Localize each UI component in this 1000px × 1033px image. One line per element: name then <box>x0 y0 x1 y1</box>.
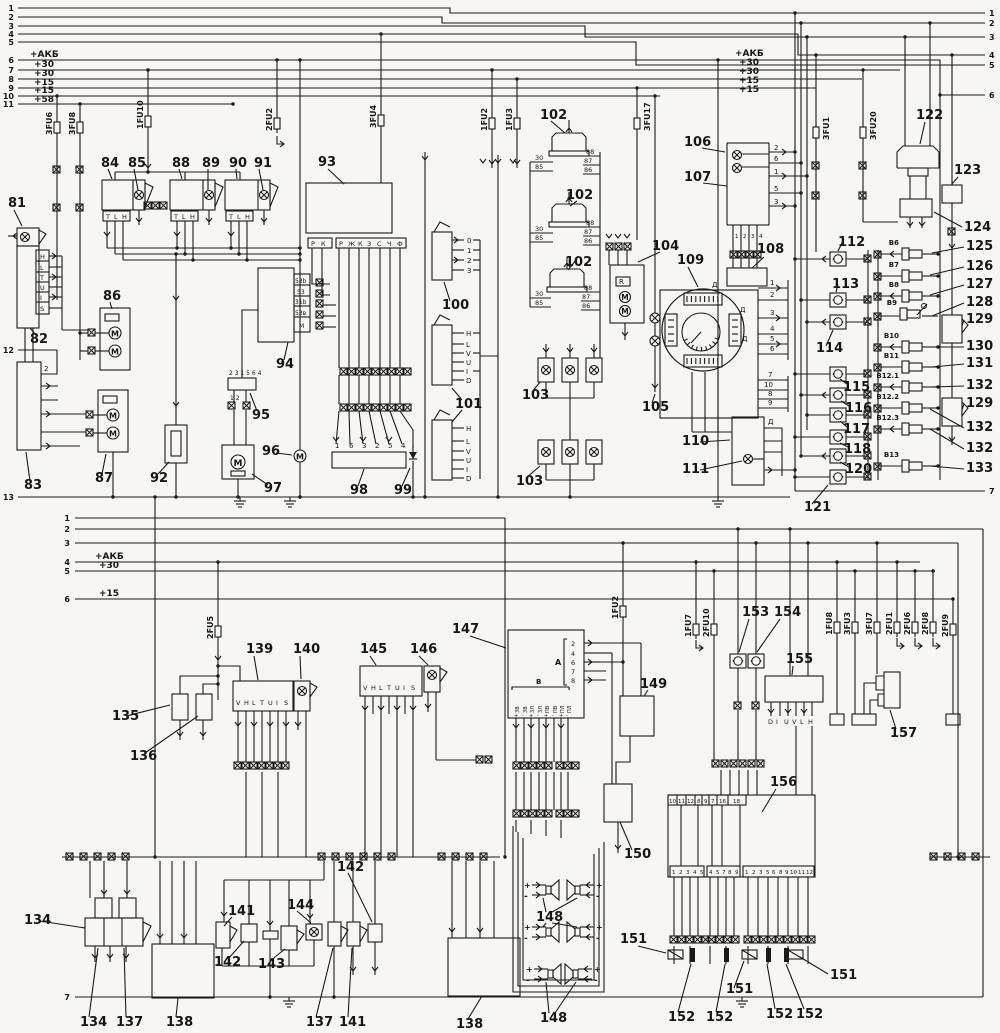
svg-text:Ж: Ж <box>348 240 355 248</box>
svg-text:152: 152 <box>668 1010 695 1025</box>
text-label: 4 <box>989 51 995 60</box>
svg-text:I: I <box>403 684 405 692</box>
component-label-126: 126 <box>966 259 993 274</box>
svg-text:86: 86 <box>582 302 590 310</box>
svg-text:L: L <box>800 718 804 726</box>
svg-text:5: 5 <box>770 335 774 343</box>
svg-text:85: 85 <box>535 163 543 171</box>
svg-text:157: 157 <box>890 726 917 741</box>
component-label-141: 141 <box>228 904 255 919</box>
component-label-138: 138 <box>456 1017 483 1032</box>
text-label: 12 <box>687 799 694 805</box>
svg-text:3: 3 <box>759 870 763 876</box>
svg-text:129: 129 <box>966 396 993 411</box>
text-label: ЗВ <box>523 706 529 713</box>
svg-text:T: T <box>259 699 264 707</box>
junction-dot <box>183 252 186 255</box>
text-label: 1 <box>989 9 995 18</box>
svg-text:2FU2: 2FU2 <box>265 108 274 131</box>
svg-text:53b: 53b <box>295 278 307 285</box>
text-label: H <box>245 213 250 221</box>
svg-text:Д: Д <box>742 335 748 343</box>
component-label-137: 137 <box>306 1015 333 1030</box>
text-label: 53в <box>295 310 307 317</box>
svg-text:D: D <box>466 475 471 483</box>
component-label-103: 103 <box>522 388 549 403</box>
svg-text:T: T <box>228 213 233 221</box>
component-label-136: 136 <box>130 749 157 764</box>
svg-text:3: 3 <box>774 198 778 206</box>
text-label: V <box>363 684 368 692</box>
component-label-132: 132 <box>966 441 993 456</box>
svg-text:53в: 53в <box>295 310 307 317</box>
svg-text:141: 141 <box>228 904 255 919</box>
svg-text:2: 2 <box>64 525 70 534</box>
junction-dot <box>936 294 939 297</box>
component-label-138: 138 <box>166 1015 193 1030</box>
text-label: B12.2 <box>876 393 899 401</box>
svg-text:88: 88 <box>584 284 592 292</box>
svg-text:96: 96 <box>262 444 280 459</box>
component-label-87: 87 <box>95 471 113 486</box>
text-label: 1 2 <box>230 395 240 402</box>
svg-text:89: 89 <box>202 156 220 171</box>
text-label: U <box>466 359 471 367</box>
svg-text:1 2: 1 2 <box>230 395 240 402</box>
junction-dot <box>268 995 271 998</box>
text-label: 8 <box>8 75 14 84</box>
junction-dot <box>174 252 177 255</box>
svg-text:U: U <box>395 684 400 692</box>
junction-dot <box>793 475 796 478</box>
svg-text:132: 132 <box>966 441 993 456</box>
component-label-111: 111 <box>682 462 709 477</box>
text-label: L <box>800 718 804 726</box>
component-label-147: 147 <box>452 622 479 637</box>
component-label-104: 104 <box>652 239 679 254</box>
svg-text:4: 4 <box>709 870 713 876</box>
text-label: B6 <box>889 239 899 247</box>
svg-text:105: 105 <box>642 400 669 415</box>
component-label-141: 141 <box>339 1015 366 1030</box>
svg-text:11: 11 <box>678 799 685 805</box>
svg-text:B8: B8 <box>889 281 899 289</box>
component-label-130: 130 <box>966 339 993 354</box>
text-label: V <box>466 350 471 358</box>
svg-text:87: 87 <box>582 293 590 301</box>
text-label: 1 <box>745 870 749 876</box>
component-label-152: 152 <box>668 1010 695 1025</box>
text-label: 6 <box>770 345 775 353</box>
text-label: T <box>173 213 178 221</box>
text-label: 2 <box>770 291 774 299</box>
svg-text:-: - <box>594 976 598 986</box>
component-label-140: 140 <box>293 642 320 657</box>
svg-text:1: 1 <box>467 247 471 255</box>
text-label: U <box>784 718 789 726</box>
component-label-148: 148 <box>540 1011 567 1026</box>
component-label-132: 132 <box>966 378 993 393</box>
text-label: Ч <box>387 240 391 248</box>
junction-dot <box>423 495 426 498</box>
text-label: З <box>367 240 371 248</box>
svg-text:151: 151 <box>830 968 857 983</box>
junction-dot <box>805 320 808 323</box>
svg-text:1FU2: 1FU2 <box>480 108 489 131</box>
svg-text:R: R <box>619 278 624 286</box>
motor-icon: M <box>294 450 306 462</box>
component-label-93: 93 <box>318 155 336 170</box>
component-label-145: 145 <box>360 642 387 657</box>
text-label: U <box>395 684 400 692</box>
text-label: 7 <box>571 668 575 676</box>
svg-text:4: 4 <box>759 234 763 240</box>
text-label: L <box>252 699 256 707</box>
text-label: С <box>377 240 382 248</box>
svg-text:H: H <box>40 253 45 261</box>
svg-text:-: - <box>596 892 600 902</box>
text-label: 5 <box>774 185 778 193</box>
text-label: B11 <box>884 352 899 360</box>
text-label: 88 <box>586 148 594 156</box>
svg-text:4: 4 <box>693 870 697 876</box>
svg-text:87: 87 <box>95 471 113 486</box>
svg-text:V: V <box>236 699 241 707</box>
svg-text:S: S <box>40 305 44 313</box>
svg-text:S: S <box>284 699 288 707</box>
junction-dot <box>245 258 248 261</box>
text-label: 5 <box>64 567 70 576</box>
svg-text:153: 153 <box>742 605 769 620</box>
svg-text:117: 117 <box>843 422 870 437</box>
text-label: 2 <box>679 870 683 876</box>
text-label: +58 <box>34 95 54 105</box>
svg-text:2FU6: 2FU6 <box>903 611 912 635</box>
text-label: 3 <box>770 309 774 317</box>
svg-text:2 3 1 5 6 4: 2 3 1 5 6 4 <box>229 370 262 377</box>
text-label: D <box>466 377 471 385</box>
component-label-83: 83 <box>24 478 42 493</box>
svg-text:134: 134 <box>24 913 51 928</box>
junction-dot <box>216 664 219 667</box>
svg-text:125: 125 <box>966 239 993 254</box>
svg-text:152: 152 <box>796 1007 823 1022</box>
text-label: 4 <box>571 650 575 658</box>
svg-text:Д: Д <box>740 306 746 314</box>
junction-dot <box>153 495 156 498</box>
text-label: S <box>40 305 44 313</box>
svg-text:B7: B7 <box>889 261 899 269</box>
svg-text:H: H <box>808 718 813 726</box>
component-label-97: 97 <box>264 481 282 496</box>
text-label: D <box>768 718 773 726</box>
svg-text:S: S <box>411 684 415 692</box>
component-label-84: 84 <box>101 156 119 171</box>
text-label: L <box>237 213 241 221</box>
text-label: S <box>284 699 288 707</box>
svg-text:156: 156 <box>770 775 797 790</box>
svg-text:L: L <box>379 684 383 692</box>
svg-text:L: L <box>466 438 470 446</box>
junction-dot <box>793 257 796 260</box>
motor-icon: M <box>620 306 631 317</box>
component-label-129: 129 <box>966 312 993 327</box>
junction-dot <box>191 258 194 261</box>
svg-text:V: V <box>466 448 471 456</box>
svg-text:1: 1 <box>774 168 778 176</box>
text-label: H <box>466 330 471 338</box>
text-label: V <box>236 699 241 707</box>
svg-text:124: 124 <box>964 220 991 235</box>
svg-text:137: 137 <box>306 1015 333 1030</box>
svg-text:150: 150 <box>624 847 651 862</box>
svg-text:147: 147 <box>452 622 479 637</box>
svg-text:2: 2 <box>989 19 995 28</box>
svg-text:140: 140 <box>293 642 320 657</box>
component-label-101: 101 <box>455 397 482 412</box>
text-label: В <box>536 678 541 686</box>
text-label: B10 <box>884 332 899 340</box>
svg-text:83: 83 <box>24 478 42 493</box>
text-label: 2 <box>571 640 575 648</box>
component-label-100: 100 <box>442 298 469 313</box>
component-label-107: 107 <box>684 170 711 185</box>
svg-text:1FU8: 1FU8 <box>825 611 834 635</box>
svg-text:2FU9: 2FU9 <box>941 613 950 637</box>
svg-text:6: 6 <box>64 595 70 604</box>
text-label: +15 <box>739 85 759 95</box>
text-label: 2 <box>752 870 756 876</box>
text-label: 4 <box>759 234 763 240</box>
svg-text:7: 7 <box>8 66 14 75</box>
text-label: 11 <box>678 799 685 805</box>
svg-text:11: 11 <box>798 870 805 876</box>
text-label: 2 3 1 5 6 4 <box>229 370 262 377</box>
component-label-127: 127 <box>966 277 993 292</box>
text-label: H <box>371 684 376 692</box>
component-label-88: 88 <box>172 156 190 171</box>
svg-text:H: H <box>245 213 250 221</box>
component-label-146: 146 <box>410 642 437 657</box>
component-label-123: 123 <box>954 163 981 178</box>
svg-text:5: 5 <box>766 870 770 876</box>
svg-text:5: 5 <box>716 870 720 876</box>
svg-text:3FU1: 3FU1 <box>822 116 831 140</box>
svg-text:3FU4: 3FU4 <box>369 104 378 128</box>
text-label: 88 <box>584 284 592 292</box>
text-label: 4 <box>401 442 406 450</box>
component-label-154: 154 <box>774 605 801 620</box>
svg-text:144: 144 <box>287 898 314 913</box>
svg-text:5: 5 <box>388 442 392 450</box>
svg-text:12: 12 <box>3 346 14 355</box>
svg-text:7: 7 <box>571 668 575 676</box>
text-label: Р <box>339 240 343 248</box>
component-label-152: 152 <box>796 1007 823 1022</box>
text-label: B7 <box>889 261 899 269</box>
component-label-102: 102 <box>566 188 593 203</box>
svg-text:136: 136 <box>130 749 157 764</box>
svg-text:10: 10 <box>790 870 797 876</box>
svg-text:1: 1 <box>8 4 14 13</box>
svg-text:109: 109 <box>677 253 704 268</box>
svg-text:U: U <box>466 457 471 465</box>
junction-dot <box>216 682 219 685</box>
text-label: 1 <box>770 279 774 287</box>
text-label: 53 <box>297 289 305 296</box>
svg-text:152: 152 <box>706 1010 733 1025</box>
motor-icon: M <box>109 345 121 357</box>
svg-text:ЗВ: ЗВ <box>515 706 521 713</box>
text-label: I <box>466 368 468 376</box>
svg-text:+15: +15 <box>739 85 759 95</box>
svg-text:7: 7 <box>64 993 70 1002</box>
text-label: H <box>190 213 195 221</box>
svg-text:ПЛ: ПЛ <box>567 705 573 713</box>
svg-text:2FU10: 2FU10 <box>702 608 711 637</box>
svg-text:ПВ: ПВ <box>553 705 559 713</box>
svg-text:141: 141 <box>339 1015 366 1030</box>
junction-dot <box>236 495 239 498</box>
svg-text:3: 3 <box>64 539 70 548</box>
svg-text:6: 6 <box>349 442 354 450</box>
component-label-103: 103 <box>516 474 543 489</box>
svg-text:B9: B9 <box>887 299 897 307</box>
svg-text:4: 4 <box>989 51 995 60</box>
svg-text:7: 7 <box>989 487 995 496</box>
svg-text:149: 149 <box>640 677 667 692</box>
svg-text:ЗЛ: ЗЛ <box>530 706 536 713</box>
junction-dot <box>936 252 939 255</box>
component-label-151: 151 <box>620 932 647 947</box>
text-label: 2 <box>989 19 995 28</box>
svg-text:118: 118 <box>844 442 871 457</box>
text-label: 3 <box>64 539 70 548</box>
svg-text:3: 3 <box>686 870 690 876</box>
svg-text:100: 100 <box>442 298 469 313</box>
svg-text:T: T <box>173 213 178 221</box>
text-label: Д <box>768 418 774 426</box>
svg-text:V: V <box>363 684 368 692</box>
svg-text:126: 126 <box>966 259 993 274</box>
text-label: 7 <box>8 66 14 75</box>
component-label-125: 125 <box>966 239 993 254</box>
text-label: 6 <box>8 56 14 65</box>
svg-text:116: 116 <box>845 401 872 416</box>
svg-text:7: 7 <box>711 799 715 805</box>
svg-text:4: 4 <box>770 325 775 333</box>
svg-text:5: 5 <box>774 185 778 193</box>
text-label: 6 <box>64 595 70 604</box>
svg-text:-: - <box>596 934 600 944</box>
svg-text:30: 30 <box>535 225 543 233</box>
svg-text:86: 86 <box>584 237 592 245</box>
text-label: 7 <box>64 993 70 1002</box>
svg-text:ПЛ: ПЛ <box>560 705 566 713</box>
svg-text:T: T <box>105 213 110 221</box>
text-label: I <box>276 699 278 707</box>
text-label: 1 <box>774 168 778 176</box>
svg-text:8: 8 <box>779 870 783 876</box>
svg-text:137: 137 <box>116 1015 143 1030</box>
svg-text:I: I <box>276 699 278 707</box>
text-label: L <box>379 684 383 692</box>
text-label: D <box>466 475 471 483</box>
text-label: H <box>122 213 127 221</box>
svg-text:151: 151 <box>620 932 647 947</box>
component-label-102: 102 <box>540 108 567 123</box>
text-label: V <box>792 718 797 726</box>
text-label: 2 <box>8 13 14 22</box>
text-label: B12.1 <box>876 372 899 380</box>
svg-text:V: V <box>466 350 471 358</box>
component-label-151: 151 <box>726 982 753 997</box>
text-label: 2 <box>375 442 379 450</box>
component-label-102: 102 <box>565 255 592 270</box>
text-label: 88 <box>586 219 594 227</box>
svg-text:2FU8: 2FU8 <box>921 611 930 635</box>
text-label: 2 <box>467 257 471 265</box>
text-label: 2 <box>44 365 48 373</box>
text-label: U <box>466 457 471 465</box>
text-label: 87 <box>584 228 592 236</box>
svg-text:111: 111 <box>682 462 709 477</box>
text-label: 3 <box>989 33 995 42</box>
svg-text:2: 2 <box>743 234 747 240</box>
svg-text:132: 132 <box>966 378 993 393</box>
svg-text:В: В <box>536 678 541 686</box>
svg-text:H: H <box>190 213 195 221</box>
svg-text:2FU5: 2FU5 <box>206 615 215 639</box>
svg-text:101: 101 <box>455 397 482 412</box>
svg-text:139: 139 <box>246 642 273 657</box>
component-label-86: 86 <box>103 289 121 304</box>
svg-text:9: 9 <box>735 870 739 876</box>
text-label: 1 <box>467 247 471 255</box>
text-label: 3 <box>751 234 755 240</box>
svg-text:А: А <box>555 658 562 667</box>
text-label: 4 <box>693 870 697 876</box>
text-label: Д <box>740 306 746 314</box>
text-label: H <box>466 425 471 433</box>
svg-text:103: 103 <box>522 388 549 403</box>
svg-text:H: H <box>122 213 127 221</box>
text-label: ЗВ <box>515 706 521 713</box>
svg-text:155: 155 <box>786 652 813 667</box>
svg-text:85: 85 <box>535 234 543 242</box>
text-label: ЗЛ <box>530 706 536 713</box>
junction-dot <box>229 246 232 249</box>
junction-dot <box>332 995 335 998</box>
svg-text:107: 107 <box>684 170 711 185</box>
text-label: 1 <box>672 870 676 876</box>
junction-dot <box>237 252 240 255</box>
svg-text:7: 7 <box>768 371 772 379</box>
text-label: 18 <box>733 799 740 805</box>
text-label: T <box>386 684 391 692</box>
svg-text:8: 8 <box>571 677 575 685</box>
svg-text:1: 1 <box>64 514 70 523</box>
junction-dot <box>496 495 499 498</box>
svg-text:148: 148 <box>536 910 563 925</box>
svg-text:+: + <box>524 923 531 932</box>
component-label-129: 129 <box>966 396 993 411</box>
svg-text:88: 88 <box>586 148 594 156</box>
junction-dot <box>799 393 802 396</box>
component-label-90: 90 <box>229 156 247 171</box>
svg-text:U: U <box>784 718 789 726</box>
svg-text:84: 84 <box>101 156 119 171</box>
